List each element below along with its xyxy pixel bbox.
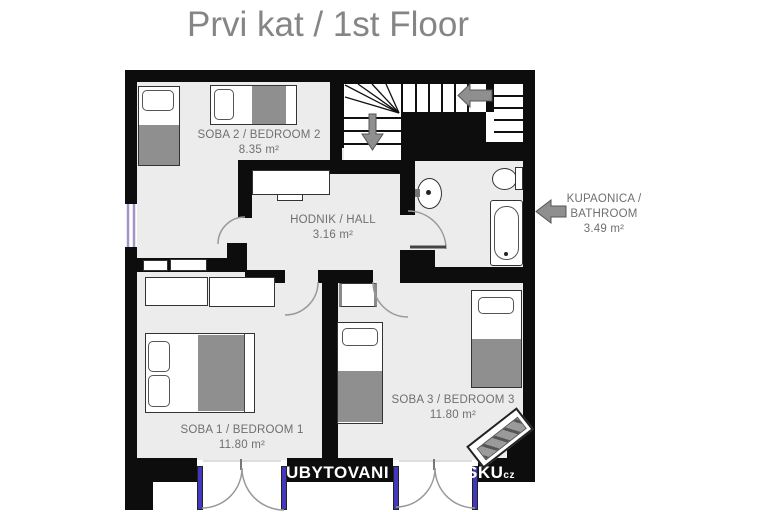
bedroom2-name: SOBA 2 / BEDROOM 2 [197, 128, 320, 143]
watermark-right-text: SKU [466, 463, 503, 482]
bathroom-area: 3.49 m² [567, 222, 642, 237]
bedroom2-label: SOBA 2 / BEDROOM 2 8.35 m² [197, 128, 320, 158]
plan-linework [0, 0, 768, 512]
floor-plan-canvas: Prvi kat / 1st Floor [0, 0, 768, 512]
hall-area: 3.16 m² [290, 228, 376, 243]
balcony-door-arc-1 [202, 468, 242, 508]
bedroom2-door-arc [218, 217, 245, 244]
bedroom3-name: SOBA 3 / BEDROOM 3 [391, 393, 514, 408]
bedroom1-area: 11.80 m² [180, 438, 303, 453]
balcony-door-arc-3 [396, 468, 435, 507]
bedroom3-door-arc [373, 282, 408, 317]
bedroom3-label: SOBA 3 / BEDROOM 3 11.80 m² [391, 393, 514, 423]
bedroom3-area: 11.80 m² [391, 408, 514, 423]
bedroom1-name: SOBA 1 / BEDROOM 1 [180, 423, 303, 438]
hall-name: HODNIK / HALL [290, 213, 376, 228]
bathroom-name-line1: KUPAONICA / [567, 192, 642, 207]
bedroom2-area: 8.35 m² [197, 143, 320, 158]
bathroom-name-line2: BATHROOM [567, 207, 642, 222]
bathroom-door-arc [408, 211, 446, 249]
bathroom-pointer-arrow-icon [536, 200, 566, 223]
watermark-suffix: cz [503, 470, 515, 481]
balcony-door-arc-2 [242, 468, 284, 510]
stairs-turn-arrow-icon [458, 84, 492, 107]
watermark-right: SKUcz [466, 463, 515, 483]
bedroom1-door-arc [285, 282, 318, 315]
bathroom-label: KUPAONICA / BATHROOM 3.49 m² [567, 192, 642, 237]
watermark-left: UBYTOVANI [286, 463, 389, 483]
hall-label: HODNIK / HALL 3.16 m² [290, 213, 376, 243]
bedroom1-label: SOBA 1 / BEDROOM 1 11.80 m² [180, 423, 303, 453]
